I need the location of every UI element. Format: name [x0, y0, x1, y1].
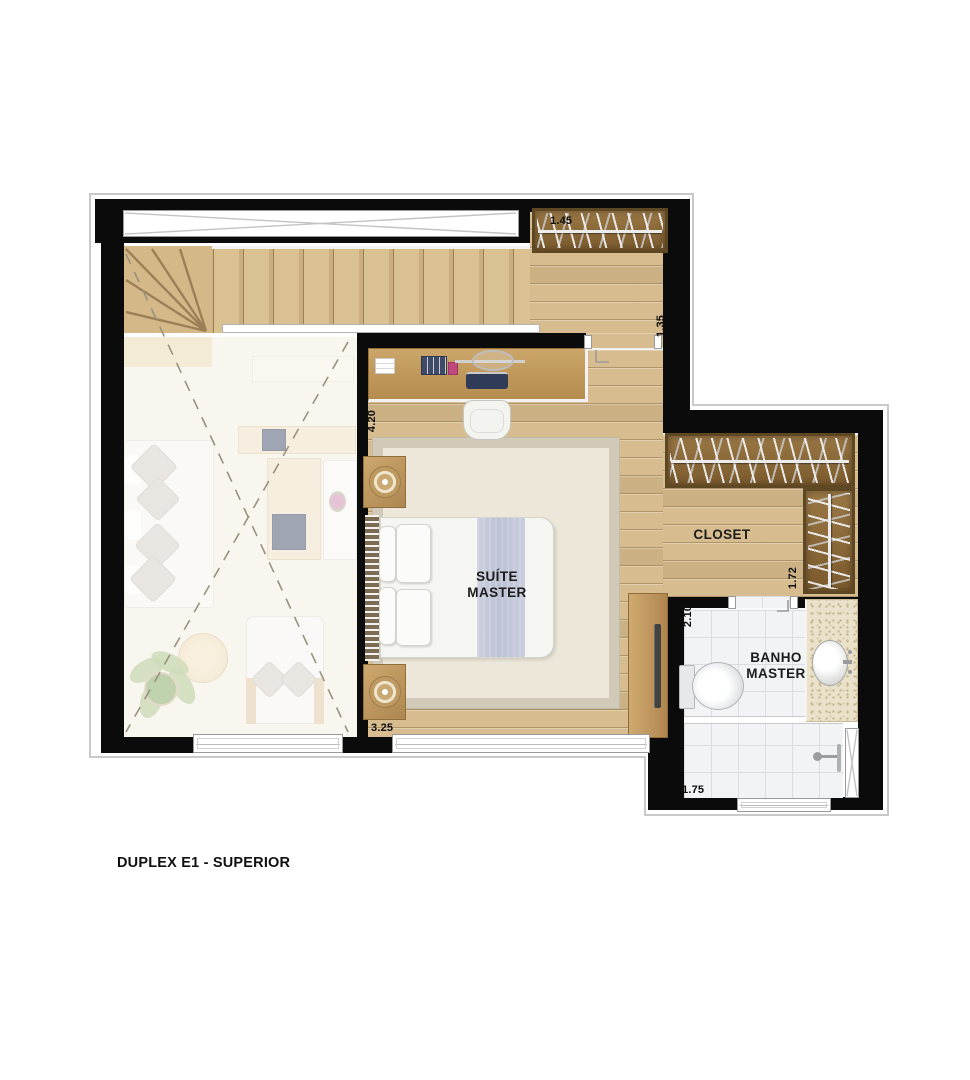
window-bathroom: [737, 798, 831, 812]
faucet-handle: [848, 650, 852, 654]
room-label-suite-line2: MASTER: [437, 585, 557, 601]
desk-towels: [375, 358, 395, 374]
tv-screen: [654, 624, 661, 708]
wall-left: [101, 199, 124, 753]
hanger-rod: [671, 460, 849, 463]
closet-rack-side: [803, 488, 855, 594]
hanger-rod: [538, 230, 662, 233]
wheel-decor: [472, 350, 514, 371]
tv-panel: [628, 593, 668, 738]
desk-box: [448, 362, 458, 375]
floor-plan-page: 1.45 1.35 4.20 1.72 2.10 3.25 1.75 SUÍTE…: [0, 0, 970, 1080]
room-label-banho-line2: MASTER: [716, 666, 836, 682]
stair-winder: [124, 246, 212, 333]
window-living: [193, 734, 343, 753]
wall-suite-bath-pier: [648, 737, 684, 810]
window-suite: [392, 734, 650, 753]
desk-books: [421, 356, 447, 375]
bed-headboard: [365, 515, 379, 661]
dimension-label: 1.45: [550, 215, 572, 227]
pillow: [396, 524, 431, 583]
pillow: [396, 589, 431, 646]
closet-rack-top: [665, 433, 855, 488]
suite-door-floor: [586, 333, 663, 348]
shower-head: [813, 752, 822, 761]
pillow: [379, 526, 396, 582]
shower-bar: [837, 744, 841, 772]
pillow: [379, 587, 396, 645]
door-jamb: [728, 596, 736, 609]
table-lamp: [369, 466, 401, 498]
stair-handrail: [222, 324, 540, 333]
dimension-label: 1.35: [654, 306, 668, 346]
dimension-label: 4.20: [365, 401, 379, 441]
dimension-label: 1.75: [682, 784, 704, 796]
dimension-label: 2.10: [681, 596, 695, 636]
room-label-suite-line1: SUÍTE: [437, 569, 557, 585]
bathroom-door-floor: [735, 596, 792, 608]
wall-right-lower: [858, 423, 883, 810]
room-label-banho: BANHO MASTER: [716, 650, 836, 682]
door-jamb: [584, 335, 592, 349]
desk-chair: [463, 400, 511, 440]
room-label-suite: SUÍTE MASTER: [437, 569, 557, 601]
window-top: [123, 210, 519, 237]
dimension-label: 3.25: [371, 722, 393, 734]
wall-suite-top: [357, 333, 586, 348]
faucet: [843, 660, 852, 664]
plan-title: DUPLEX E1 - SUPERIOR: [117, 855, 290, 871]
radio: [466, 372, 508, 389]
room-label-closet: CLOSET: [662, 527, 782, 543]
room-label-banho-line1: BANHO: [716, 650, 836, 666]
window-shower: [845, 728, 859, 798]
void-fade-overlay: [124, 337, 357, 737]
wall-bottom-pier: [342, 737, 393, 753]
wall-closet-top: [663, 410, 883, 433]
hanger-rod: [828, 494, 831, 588]
wall-bottom-left: [101, 737, 195, 753]
table-lamp: [369, 676, 401, 708]
dimension-label: 1.72: [786, 558, 800, 598]
faucet-handle: [848, 670, 852, 674]
